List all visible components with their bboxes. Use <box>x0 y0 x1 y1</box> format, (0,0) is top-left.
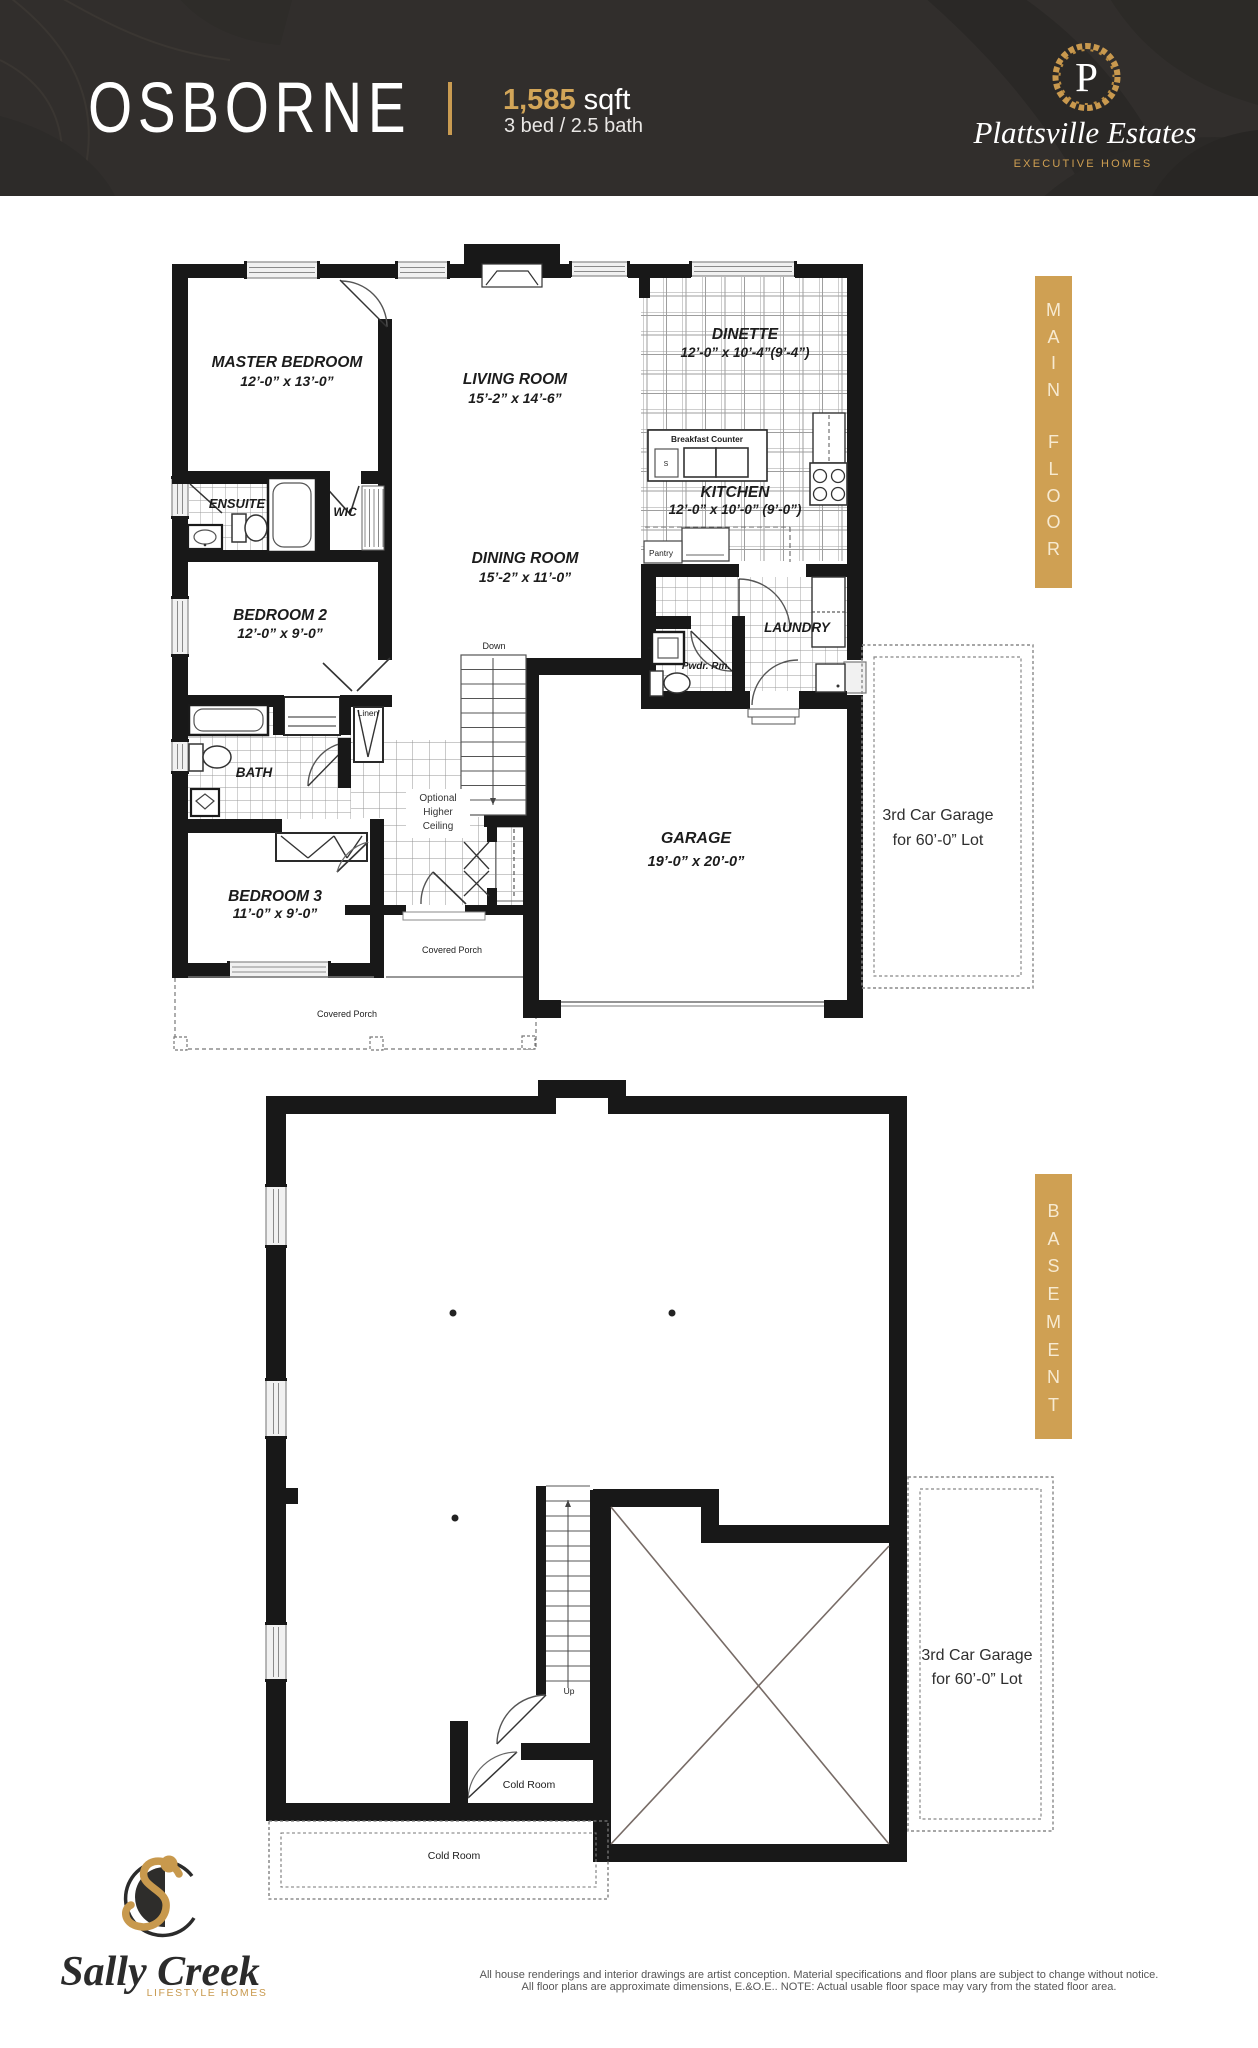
svg-text:15’-2” x 14’-6”: 15’-2” x 14’-6” <box>468 390 561 406</box>
svg-text:Covered Porch: Covered Porch <box>422 945 482 955</box>
svg-text:Pantry: Pantry <box>649 548 674 558</box>
svg-text:Optional: Optional <box>419 793 456 804</box>
svg-text:Breakfast Counter: Breakfast Counter <box>671 434 744 444</box>
svg-text:BATH: BATH <box>236 765 273 780</box>
svg-text:12’-0” x 10’-0” (9’-0”): 12’-0” x 10’-0” (9’-0”) <box>669 502 802 517</box>
svg-text:LIVING ROOM: LIVING ROOM <box>463 371 568 388</box>
svg-text:Pwdr. Rm.: Pwdr. Rm. <box>682 661 730 672</box>
svg-text:Higher: Higher <box>423 807 453 818</box>
svg-text:Down: Down <box>482 641 505 651</box>
svg-text:3rd Car Garage: 3rd Car Garage <box>882 807 993 824</box>
svg-text:ENSUITE: ENSUITE <box>209 496 266 511</box>
svg-text:19’-0” x 20’-0”: 19’-0” x 20’-0” <box>648 854 745 870</box>
svg-text:12’-0” x 13’-0”: 12’-0” x 13’-0” <box>240 373 333 389</box>
svg-text:BEDROOM 2: BEDROOM 2 <box>233 607 327 624</box>
svg-text:Covered Porch: Covered Porch <box>317 1009 377 1019</box>
svg-text:DINING ROOM: DINING ROOM <box>472 550 580 567</box>
svg-text:for 60’-0” Lot: for 60’-0” Lot <box>893 832 984 849</box>
svg-text:GARAGE: GARAGE <box>661 830 733 847</box>
svg-text:15’-2” x 11’-0”: 15’-2” x 11’-0” <box>479 569 571 585</box>
svg-text:KITCHEN: KITCHEN <box>701 484 771 501</box>
svg-text:11’-0” x 9’-0”: 11’-0” x 9’-0” <box>233 905 318 921</box>
svg-text:for 60’-0” Lot: for 60’-0” Lot <box>932 1671 1023 1688</box>
svg-text:BEDROOM 3: BEDROOM 3 <box>228 888 322 905</box>
svg-text:MASTER BEDROOM: MASTER BEDROOM <box>212 354 364 371</box>
svg-text:WIC: WIC <box>333 505 357 519</box>
svg-text:Linen: Linen <box>358 708 379 718</box>
svg-text:3rd Car Garage: 3rd Car Garage <box>921 1647 1032 1664</box>
svg-text:12’-0” x 10’-4”(9’-4”): 12’-0” x 10’-4”(9’-4”) <box>680 345 810 360</box>
svg-text:S: S <box>664 461 669 468</box>
svg-text:Ceiling: Ceiling <box>423 821 454 832</box>
svg-text:Up: Up <box>564 1686 575 1696</box>
svg-text:LIFESTYLE HOMES: LIFESTYLE HOMES <box>147 1987 268 1999</box>
svg-text:LAUNDRY: LAUNDRY <box>764 620 832 635</box>
svg-text:Cold Room: Cold Room <box>503 1779 556 1791</box>
svg-text:Cold Room: Cold Room <box>428 1850 481 1862</box>
svg-text:12’-0” x 9’-0”: 12’-0” x 9’-0” <box>237 625 323 641</box>
svg-text:DINETTE: DINETTE <box>712 326 779 343</box>
